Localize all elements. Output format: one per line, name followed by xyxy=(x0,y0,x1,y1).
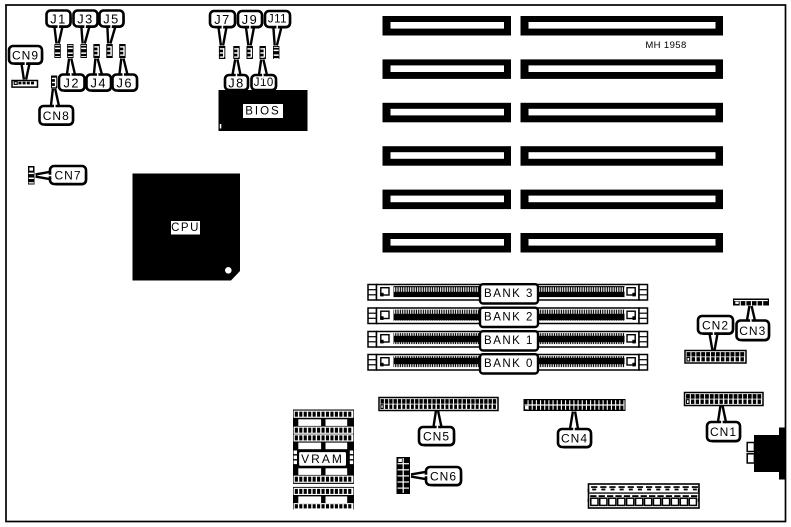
svg-text:CN7: CN7 xyxy=(54,169,81,183)
svg-text:CN3: CN3 xyxy=(739,324,766,338)
svg-text:J4: J4 xyxy=(90,76,107,91)
svg-text:CN8: CN8 xyxy=(43,109,70,123)
svg-text:CN6: CN6 xyxy=(430,470,457,484)
svg-text:BANK 2: BANK 2 xyxy=(484,311,534,323)
svg-text:CN1: CN1 xyxy=(710,425,737,439)
svg-text:BANK 3: BANK 3 xyxy=(484,288,534,300)
svg-text:MH 1958: MH 1958 xyxy=(645,40,686,51)
svg-text:J2: J2 xyxy=(63,76,80,91)
svg-text:BANK 1: BANK 1 xyxy=(484,335,534,347)
svg-text:CN4: CN4 xyxy=(561,432,588,446)
svg-text:VRAM: VRAM xyxy=(301,452,344,466)
svg-text:J10: J10 xyxy=(254,77,274,89)
svg-text:CN2: CN2 xyxy=(702,318,729,332)
svg-text:CN5: CN5 xyxy=(423,430,450,444)
svg-text:CPU: CPU xyxy=(171,222,200,234)
svg-text:J6: J6 xyxy=(116,76,133,91)
svg-text:BIOS: BIOS xyxy=(245,106,280,118)
svg-text:BANK 0: BANK 0 xyxy=(484,358,534,370)
